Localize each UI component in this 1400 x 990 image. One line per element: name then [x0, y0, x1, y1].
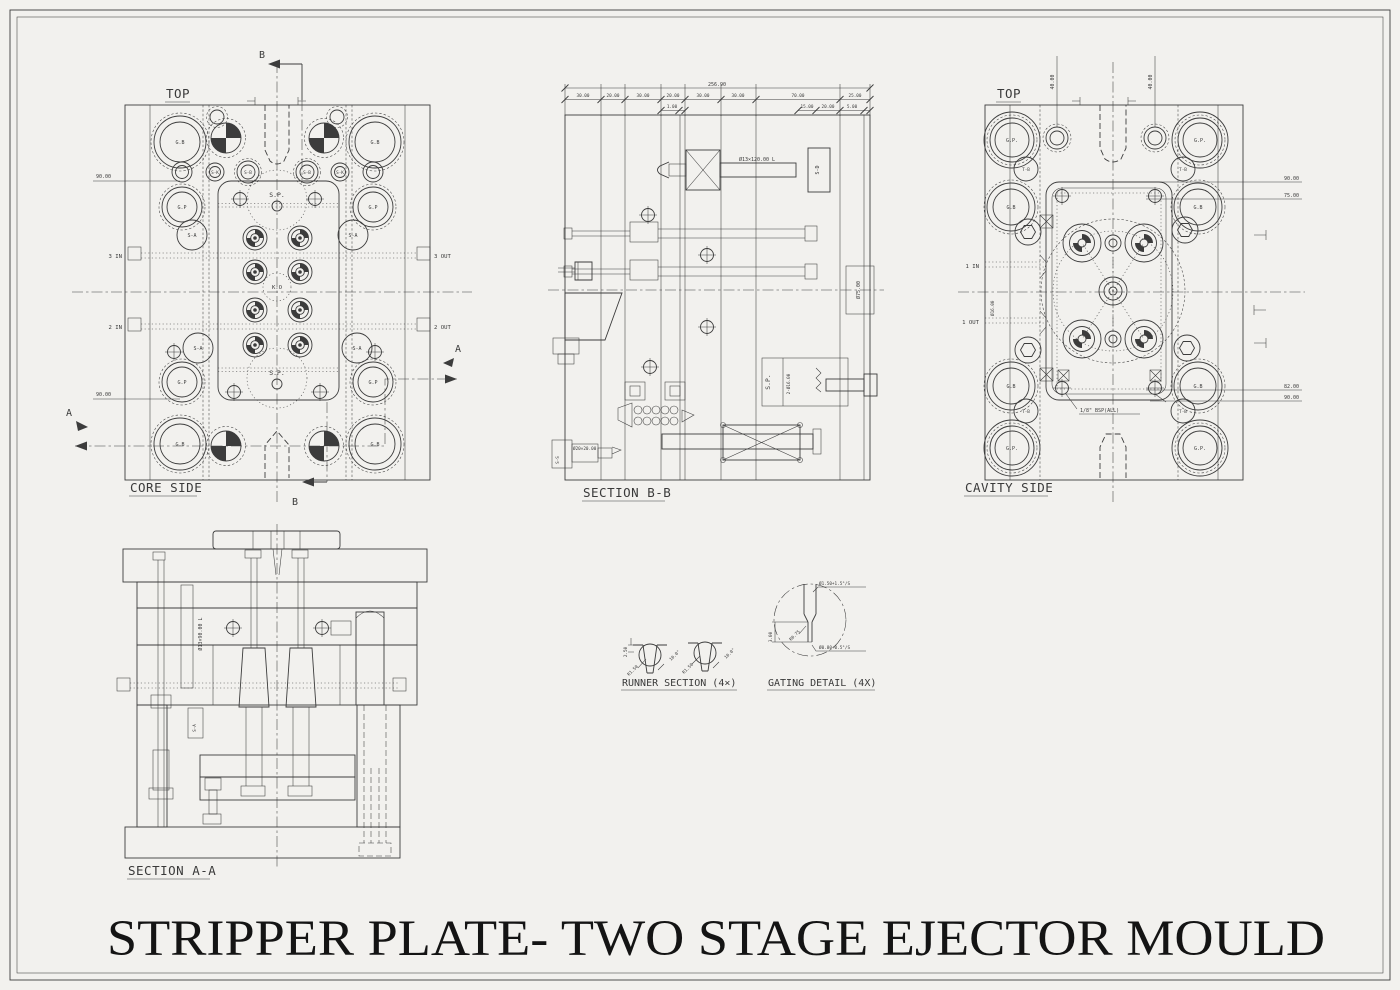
screw-label: S-B: [303, 170, 311, 176]
dowel-icons: [1043, 124, 1169, 152]
water-1-in-label: 1 IN: [966, 264, 979, 270]
sprue-puller-section: [762, 358, 877, 406]
cavity-icon: [1125, 320, 1163, 358]
knockout-label: K.O: [272, 285, 283, 291]
section-aa-view: Ø13×90.00 L S-A SECTION A-A: [117, 524, 427, 879]
screw-icon: [641, 358, 659, 376]
screw-icon: [225, 383, 243, 401]
stop-bolt: [203, 778, 221, 824]
guide-pillar-label: G.P: [368, 380, 377, 386]
screw-label: S-K: [336, 170, 344, 176]
screw-label: S-B: [244, 170, 252, 176]
guide-pillar-label: G.P.: [1194, 446, 1206, 452]
runner-radius-dim: R1.50: [681, 662, 695, 676]
return-pin-spring: [662, 423, 821, 463]
gating-detail-label: GATING DETAIL (4X): [768, 678, 876, 689]
screw-icon: [313, 619, 331, 637]
ejector-plate: [200, 777, 355, 800]
dim-sub: 20.00: [822, 104, 835, 110]
dim-seg: 25.00: [849, 93, 862, 99]
socket-screw-icon: [1015, 219, 1041, 245]
guide-bush-label: G.B: [175, 442, 184, 448]
ejector-pin-icon: [243, 226, 267, 250]
gate-profile: [804, 584, 816, 642]
guide-pillar-label: G.P: [368, 205, 377, 211]
riser-right: [357, 705, 400, 827]
shaft-dim-label: Ø13×90.00 L: [197, 617, 204, 650]
screw-icon: [366, 343, 384, 361]
dim-82: 82.00: [1284, 384, 1299, 390]
drawing-title: STRIPPER PLATE- TWO STAGE EJECTOR MOULD: [107, 911, 1325, 967]
gate-land-dim: 3.00: [768, 631, 774, 642]
section-bb-view: 256.90 30.00 20.00 30.00 20.00 30.00 30.…: [548, 82, 884, 501]
dim-90-bottom: 90.00: [1284, 395, 1299, 401]
dia-16-label: Ø16.00: [989, 300, 996, 316]
ejector-pin-icon: [243, 333, 267, 357]
ejector-pin-icon: [288, 260, 312, 284]
tb-label: T-B: [1179, 409, 1187, 415]
spring-bolt-hidden: [359, 705, 391, 856]
runner-angle-dim: 10.0°: [668, 649, 681, 662]
sp-label: S.P.: [764, 374, 772, 389]
cavity-icon: [1063, 320, 1101, 358]
ejector-pin-b: [286, 550, 316, 796]
screw-icon: [306, 190, 324, 208]
runner-depth-dim: 2.50: [623, 646, 629, 657]
bsp-note: 1/8" BSP(ALL): [1080, 408, 1119, 414]
gating-detail: 3.00 R0.75 Ø1.50+1.5°/S Ø0.80+0.5°/S GAT…: [767, 580, 876, 690]
guide-pillar-label: G.P.: [1006, 138, 1018, 144]
dim-seg: 20.00: [667, 93, 680, 99]
bottom-clamp-plate: [125, 827, 400, 858]
sd-label: S-D: [815, 165, 821, 174]
guide-bush-label: G.B: [1006, 384, 1015, 390]
tb-label: T-B: [1022, 167, 1030, 173]
dim-seg: 30.00: [637, 93, 650, 99]
water-3-out-label: 3 OUT: [434, 254, 451, 260]
socket-bolts: [625, 382, 685, 400]
water-1-in: [985, 255, 1046, 278]
dim-seg: 70.00: [792, 93, 805, 99]
sa-label: S-A: [192, 724, 198, 732]
tb-label: T-B: [1179, 167, 1187, 173]
section-aa-view-label: SECTION A-A: [128, 863, 216, 878]
cavity-icon: [1063, 224, 1101, 262]
guide-pillar-label: G.P: [177, 205, 186, 211]
ejector-pins-section: [564, 222, 817, 280]
ejector-pin-icon: [288, 333, 312, 357]
guide-bush-label: G.B: [1193, 384, 1202, 390]
mould-stack-outline: [565, 115, 870, 480]
shaft-dim-label: Ø13×120.00 L: [739, 156, 775, 163]
dia-20-label: Ø20×20.00: [573, 445, 597, 452]
riser-left: [137, 705, 167, 827]
socket-screw-icon: [1015, 337, 1041, 363]
cavity-top-label: TOP: [997, 86, 1021, 101]
dim-90-top: 90.00: [1284, 176, 1299, 182]
datum-target-icon: [207, 119, 246, 158]
section-a-letter: A: [455, 344, 461, 355]
runner-section-detail: 2.50 R1.50 10.0° R1.50 10.0° RUNNER SECT…: [621, 638, 737, 690]
dim-seg: 30.00: [697, 93, 710, 99]
sheet-inner-border: [17, 17, 1383, 973]
socket-screw-icon: [1172, 217, 1198, 243]
support-pillar-label: S-A: [352, 346, 361, 352]
core-top-label: TOP: [166, 86, 190, 101]
core-side-view-label: CORE SIDE: [130, 480, 202, 495]
section-a-letter: A: [66, 408, 72, 419]
support-pillar-icons: [177, 220, 372, 363]
stopper-bolt: [552, 440, 621, 468]
ejector-retainer-plate: [200, 755, 355, 777]
water-2-in-label: 2 IN: [109, 325, 122, 331]
core-plate-outline: [125, 105, 430, 480]
core-side-view: G.B G.B G.B G.B S-K S-K S-B S-B G.P G.P …: [66, 50, 472, 508]
cavity-side-view-label: CAVITY SIDE: [965, 480, 1053, 495]
guide-bush-label: G.B: [175, 140, 184, 146]
ss-label: S-S: [555, 456, 561, 464]
gate-bottom-dim: Ø0.80+0.5°/S: [819, 644, 850, 651]
guide-bush-label: G.B: [370, 140, 379, 146]
dim-90-bottom: 90.00: [96, 392, 111, 398]
cavity-icon: [1125, 224, 1163, 262]
screw-icon: [231, 190, 249, 208]
datum-ticks: [1254, 230, 1266, 348]
dia-16-label: 2-Ø16.00: [785, 373, 792, 394]
screw-icon: [639, 206, 657, 224]
dim-75: 75.00: [1284, 193, 1299, 199]
screw-icon: [698, 246, 716, 264]
dim-90-top: 90.00: [96, 174, 111, 180]
gate-top-dim: Ø1.50+1.5°/S: [819, 580, 850, 587]
cavity-side-view: G.P. G.P. G.P. G.P. 40.00 40.00 T-B T-B …: [958, 56, 1305, 502]
screw-icon: [224, 619, 242, 637]
sprue-puller-label: S.P.: [269, 369, 284, 377]
screw-icon: [311, 383, 329, 401]
screw-label: S-K: [211, 170, 219, 176]
section-bb-view-label: SECTION B-B: [583, 485, 671, 500]
spring-puller: [618, 403, 694, 427]
dim-seg: 20.00: [607, 93, 620, 99]
screw-icon: [698, 318, 716, 336]
dim-40-right: 40.00: [1148, 74, 1154, 89]
dia-75-label: Ø75.00: [855, 281, 862, 299]
dim-sub: 1.00: [667, 104, 678, 110]
water-3-in-label: 3 IN: [109, 254, 122, 260]
runner-section-label: RUNNER SECTION (4×): [622, 678, 736, 689]
ejector-pin-icon: [243, 298, 267, 322]
dim-40-left: 40.00: [1050, 74, 1056, 89]
section-b-letter: B: [292, 497, 298, 508]
lead-pin: [149, 552, 173, 827]
dim-seg: 30.00: [732, 93, 745, 99]
guide-pillar-label: G.P.: [1194, 138, 1206, 144]
dim-total: 256.90: [708, 82, 726, 88]
section-b-letter: B: [259, 50, 265, 61]
runner-radius-dim: R1.50: [626, 664, 640, 678]
drawing-canvas: G.B G.B G.B G.B S-K S-K S-B S-B G.P G.P …: [0, 0, 1400, 990]
ejector-pin-icon: [243, 260, 267, 284]
knockout-shaft: [658, 150, 797, 190]
support-pillar-section: [356, 611, 384, 705]
guide-bush-label: G.B: [370, 442, 379, 448]
runner-angle-dim: 10.0°: [723, 647, 736, 660]
guide-pillar-label: G.P: [177, 380, 186, 386]
screw-icon: [1053, 379, 1071, 397]
ejector-pin-a: [239, 550, 269, 796]
dim-sub: 15.00: [801, 104, 814, 110]
guide-bush-label: G.B: [1193, 205, 1202, 211]
guide-rail: [117, 678, 406, 691]
ejector-pin-icon: [288, 226, 312, 250]
sprue-puller-label: S.P.: [269, 191, 284, 199]
guide-bush-label: G.B: [1006, 205, 1015, 211]
ejector-pin-icon: [288, 298, 312, 322]
tb-label: T-B: [1022, 409, 1030, 415]
water-2-out-label: 2 OUT: [434, 325, 451, 331]
dim-seg: 30.00: [577, 93, 590, 99]
support-pillar-label: S-A: [348, 233, 357, 239]
drawing-sheet: G.B G.B G.B G.B S-K S-K S-B S-B G.P G.P …: [0, 0, 1400, 990]
screw-icon: [165, 343, 183, 361]
water-line-2: [128, 318, 430, 331]
guide-pillar-label: G.P.: [1006, 446, 1018, 452]
support-pillar-label: S-A: [187, 233, 196, 239]
water-1-out-label: 1 OUT: [962, 320, 979, 326]
water-line-3: [128, 247, 430, 260]
gate-radius-dim: R0.75: [788, 629, 802, 643]
dim-sub: 5.00: [847, 104, 858, 110]
sprue-bush-section: [553, 262, 622, 364]
screw-icon: [1053, 187, 1071, 205]
support-pillar-label: S-A: [193, 346, 202, 352]
